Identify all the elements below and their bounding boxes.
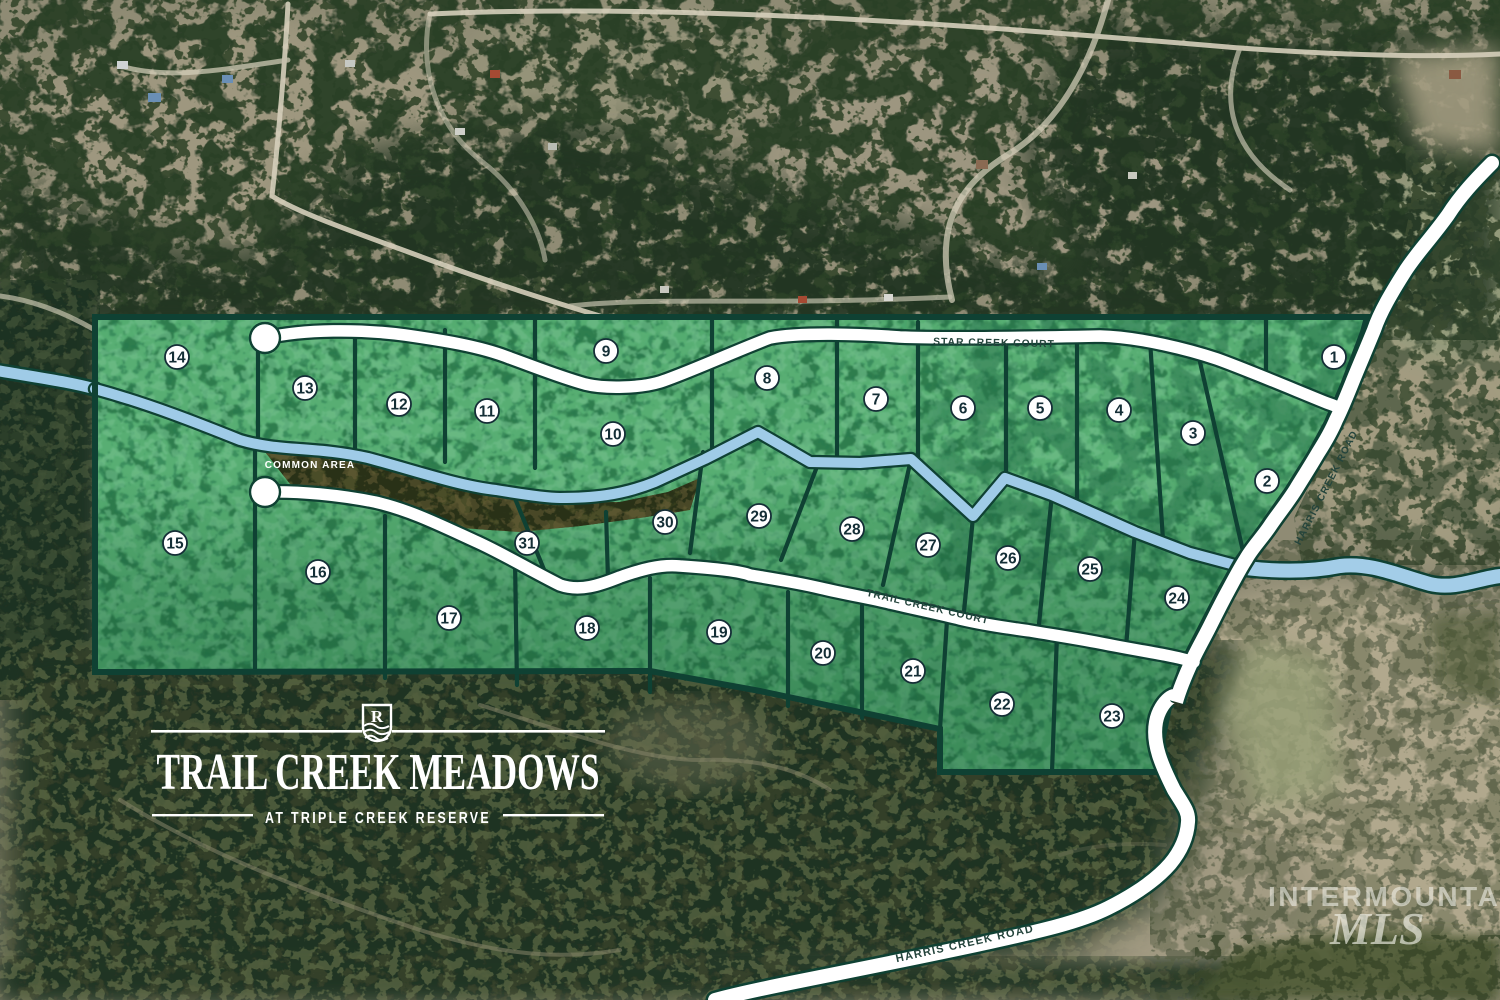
svg-text:1: 1 — [1330, 350, 1339, 367]
svg-text:27: 27 — [919, 538, 936, 555]
svg-text:7: 7 — [872, 392, 881, 409]
svg-text:9: 9 — [602, 344, 611, 361]
svg-text:5: 5 — [1036, 401, 1045, 418]
svg-text:17: 17 — [440, 611, 457, 628]
svg-text:31: 31 — [518, 536, 536, 553]
svg-text:12: 12 — [390, 397, 407, 414]
svg-text:3: 3 — [1189, 426, 1198, 443]
svg-text:24: 24 — [1168, 591, 1186, 608]
svg-text:18: 18 — [578, 621, 596, 638]
svg-text:2: 2 — [1263, 474, 1272, 491]
svg-text:10: 10 — [604, 427, 621, 444]
svg-text:11: 11 — [479, 404, 496, 421]
svg-text:20: 20 — [814, 646, 831, 663]
svg-text:MLS: MLS — [1329, 903, 1425, 954]
svg-text:29: 29 — [750, 509, 768, 526]
svg-text:22: 22 — [993, 697, 1010, 714]
svg-text:26: 26 — [999, 551, 1017, 568]
svg-text:23: 23 — [1103, 709, 1121, 726]
svg-text:R: R — [371, 707, 384, 726]
svg-text:21: 21 — [904, 664, 922, 681]
svg-text:TRAIL CREEK MEADOWS: TRAIL CREEK MEADOWS — [157, 744, 600, 801]
svg-text:19: 19 — [710, 625, 728, 642]
svg-text:COMMON AREA: COMMON AREA — [265, 460, 356, 471]
svg-text:28: 28 — [843, 522, 861, 539]
svg-text:30: 30 — [656, 515, 673, 532]
svg-text:14: 14 — [168, 350, 186, 367]
svg-text:4: 4 — [1115, 403, 1124, 420]
svg-text:15: 15 — [166, 536, 184, 553]
svg-text:8: 8 — [763, 371, 772, 388]
svg-text:6: 6 — [959, 401, 968, 418]
svg-text:25: 25 — [1081, 562, 1099, 579]
svg-text:AT TRIPLE CREEK RESERVE: AT TRIPLE CREEK RESERVE — [265, 810, 491, 827]
svg-text:16: 16 — [309, 565, 327, 582]
svg-text:13: 13 — [296, 381, 314, 398]
